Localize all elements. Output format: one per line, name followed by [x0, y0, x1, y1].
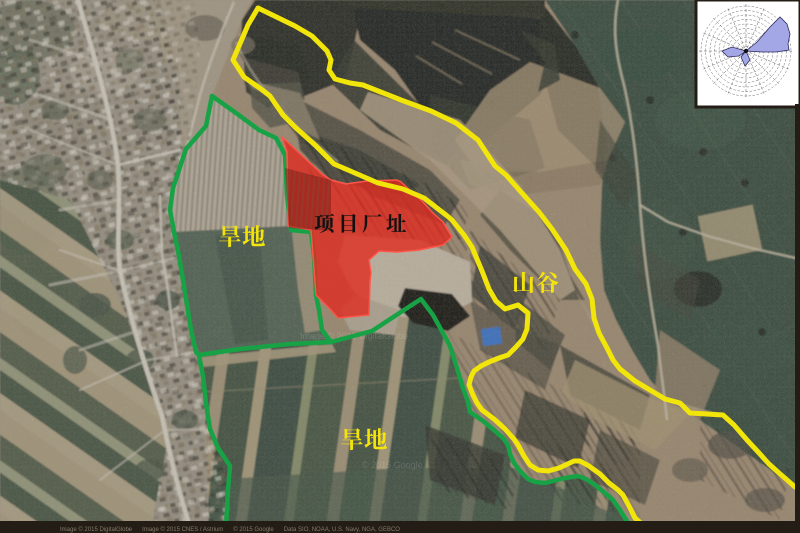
svg-text:© 2015 Google: © 2015 Google — [362, 460, 423, 470]
svg-text:Image © 2015 DigitalGlobe: Image © 2015 DigitalGlobe Image © 2015 C… — [60, 526, 400, 533]
